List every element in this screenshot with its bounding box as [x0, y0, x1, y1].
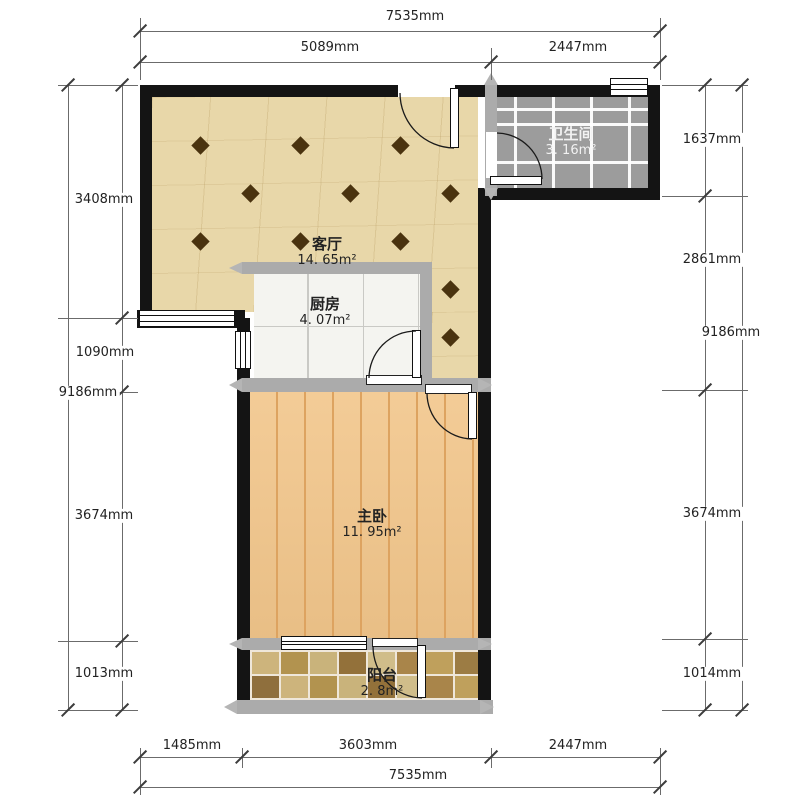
dimension-label-right-4: 1014mm [680, 667, 744, 681]
balcony-mosaic-tile [252, 676, 279, 698]
wall-cap-bedroom-south-east [478, 638, 492, 650]
window-living-south [139, 310, 235, 327]
room-area-bathroom: 3. 16m² [546, 143, 597, 159]
extension-line [660, 748, 661, 795]
dimension-label-left-3: 3674mm [72, 509, 136, 523]
door-leaf-bathroom [490, 176, 542, 185]
room-area-balcony: 2. 8m² [361, 684, 404, 700]
wall-cap-kitchen-north-west [229, 262, 242, 274]
room-area-kitchen: 4. 07m² [300, 313, 351, 329]
dimension-line-top-total [140, 31, 660, 32]
balcony-mosaic-tile [310, 676, 337, 698]
door-leaf-balcony [417, 645, 426, 698]
room-label-bathroom: 卫生间 3. 16m² [546, 125, 597, 159]
balcony-mosaic-tile [426, 676, 453, 698]
extension-line [662, 710, 748, 711]
extension-line [662, 390, 748, 391]
wall-east [478, 196, 491, 714]
room-name-living: 客厅 [297, 235, 356, 253]
wall-cap-balcony-south-east [480, 700, 494, 714]
dimension-line-left-segments [122, 85, 123, 710]
dimension-label-top-1: 5089mm [298, 41, 362, 55]
dimension-label-top-total: 7535mm [383, 10, 447, 24]
door-leaf-entry [450, 88, 459, 148]
extension-line [242, 748, 243, 768]
room-name-kitchen: 厨房 [300, 295, 351, 313]
extension-line [662, 639, 748, 640]
room-name-balcony: 阳台 [361, 666, 404, 684]
dimension-label-top-2: 2447mm [546, 41, 610, 55]
dimension-line-right-segments [705, 85, 706, 710]
room-label-bedroom: 主卧 11. 95m² [342, 507, 401, 541]
dimension-line-top-segments [140, 62, 660, 63]
extension-line [140, 18, 141, 80]
door-leaf-bedroom [468, 392, 477, 439]
balcony-mosaic-tile [252, 652, 279, 674]
wall-cap-balcony-south-west [224, 700, 237, 714]
dimension-label-bottom-1: 1485mm [160, 739, 224, 753]
wall-bathroom-south [478, 188, 660, 200]
balcony-mosaic-tile [310, 652, 337, 674]
door-leaf-kitchen [412, 330, 421, 378]
dimension-line-bottom-total [140, 787, 660, 788]
dimension-label-left-4: 1013mm [72, 667, 136, 681]
room-label-balcony: 阳台 2. 8m² [361, 666, 404, 700]
room-area-bedroom: 11. 95m² [342, 525, 401, 541]
room-name-bedroom: 主卧 [342, 507, 401, 525]
wall-bathroom-east [648, 85, 660, 200]
extension-line [140, 748, 141, 795]
dimension-label-bottom-2: 3603mm [336, 739, 400, 753]
room-label-living: 客厅 14. 65m² [297, 235, 356, 269]
dimension-label-right-3: 3674mm [680, 507, 744, 521]
balcony-mosaic-tile [455, 676, 478, 698]
room-name-bathroom: 卫生间 [546, 125, 597, 143]
dimension-label-left-2: 1090mm [73, 346, 137, 360]
floor-plan: 客厅 14. 65m² 厨房 4. 07m² 卫生间 3. 16m² 主卧 11… [0, 0, 800, 800]
dimension-line-right-total [742, 85, 743, 710]
door-opening-bathroom [486, 132, 497, 178]
wall-cap-bedroom-south-west [229, 638, 242, 650]
extension-line [58, 85, 138, 86]
balcony-mosaic-tile [281, 676, 308, 698]
window-bedroom-south [281, 636, 367, 650]
extension-line [662, 85, 748, 86]
door-threshold-bedroom [425, 384, 472, 394]
wall-top-left [140, 85, 398, 97]
dimension-label-right-2: 2861mm [680, 253, 744, 267]
wall-cap-bathroom-west-bottom [484, 188, 498, 200]
dimension-label-left-1: 3408mm [72, 193, 136, 207]
wall-kitchen-east [420, 274, 432, 378]
extension-line [660, 18, 661, 80]
balcony-mosaic-tile [426, 652, 453, 674]
window-kitchen-west [235, 331, 251, 369]
dimension-label-right-total: 9186mm [699, 326, 763, 340]
extension-line [58, 710, 138, 711]
dimension-label-right-1: 1637mm [680, 133, 744, 147]
balcony-mosaic-tile [455, 652, 478, 674]
door-threshold-balcony [372, 638, 418, 647]
extension-line [58, 318, 138, 319]
dimension-label-bottom-3: 2447mm [546, 739, 610, 753]
dimension-label-left-total: 9186mm [56, 386, 120, 400]
dimension-line-bottom-segments [140, 757, 660, 758]
wall-west-upper [140, 85, 152, 318]
wall-cap-bedroom-north-east [478, 378, 492, 392]
wall-cap-bedroom-north-west [229, 378, 242, 392]
room-label-kitchen: 厨房 4. 07m² [300, 295, 351, 329]
room-area-living: 14. 65m² [297, 253, 356, 269]
extension-line [662, 196, 748, 197]
window-bathroom-north [610, 78, 648, 96]
extension-line [491, 748, 492, 768]
wall-balcony-south [237, 700, 493, 714]
balcony-mosaic-tile [281, 652, 308, 674]
extension-line [58, 641, 138, 642]
extension-line [491, 48, 492, 80]
dimension-label-bottom-total: 7535mm [386, 769, 450, 783]
